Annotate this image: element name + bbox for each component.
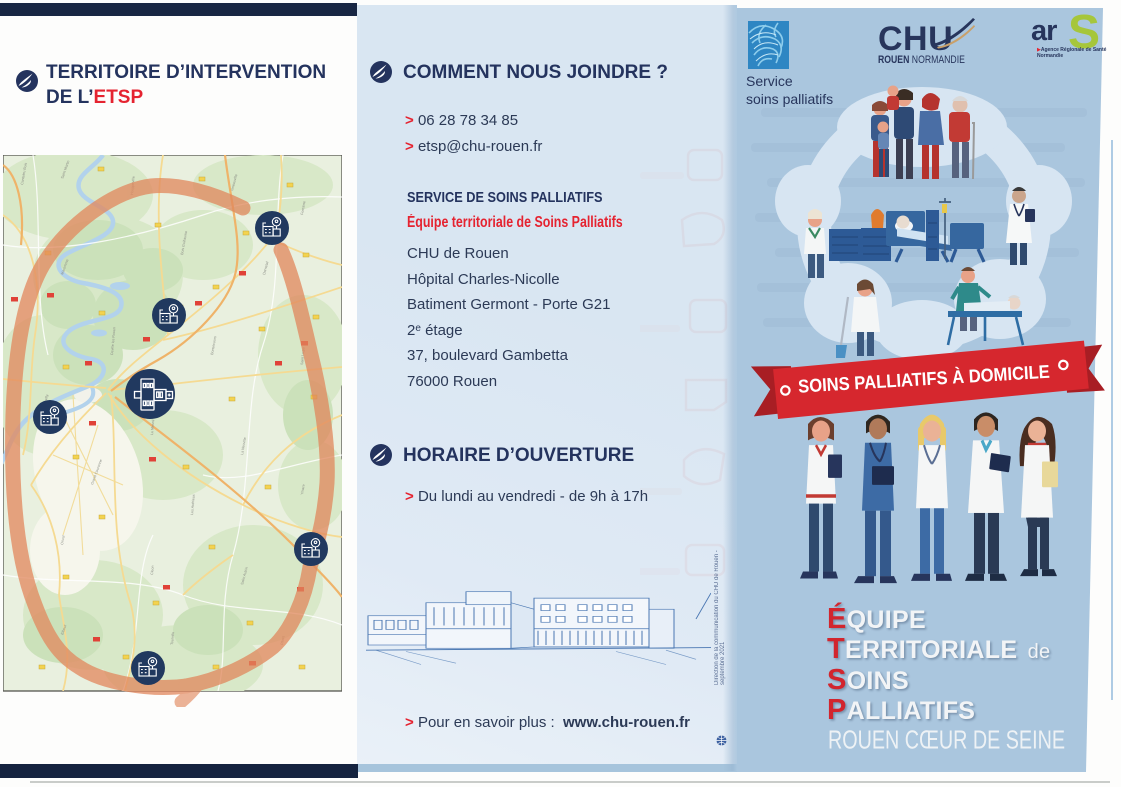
svg-text:Caudebec: Caudebec — [120, 698, 125, 707]
svg-text:Cleon: Cleon — [150, 565, 155, 575]
